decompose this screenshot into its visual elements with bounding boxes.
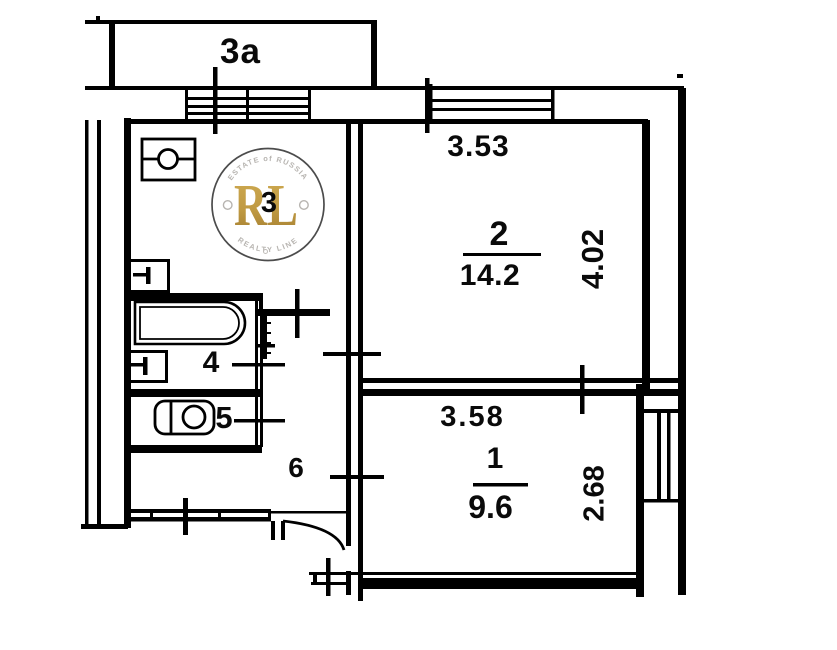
svg-text:4.02: 4.02 [575, 229, 610, 289]
svg-text:3a: 3a [220, 32, 261, 71]
svg-text:9.6: 9.6 [468, 489, 512, 525]
svg-text:6: 6 [288, 452, 304, 483]
svg-text:2: 2 [490, 215, 509, 253]
svg-text:14.2: 14.2 [460, 259, 520, 292]
svg-text:1: 1 [487, 442, 504, 475]
svg-text:3: 3 [261, 187, 277, 219]
svg-text:3.53: 3.53 [447, 130, 509, 163]
svg-text:5: 5 [215, 400, 232, 435]
svg-text:2.68: 2.68 [579, 465, 611, 521]
svg-text:4: 4 [203, 346, 220, 379]
svg-text:3.58: 3.58 [440, 401, 504, 433]
